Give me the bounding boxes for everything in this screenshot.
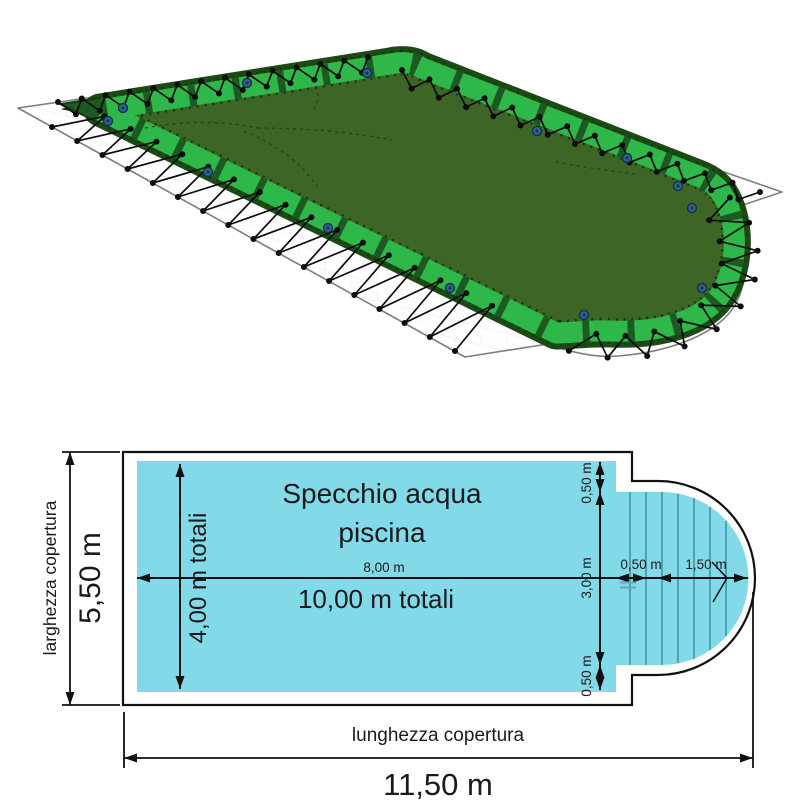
cover-width-value: 5,50 m xyxy=(74,532,107,624)
pool-rect-length-label: 8,00 m xyxy=(363,560,404,575)
scene: Specchio acqua piscina 8,00 m 10,00 m to… xyxy=(0,0,800,800)
cover-length-value: 11,50 m xyxy=(383,767,493,800)
edge-mid-label: 3,00 m xyxy=(579,557,594,598)
roman-radius-label: 1,50 m xyxy=(685,557,726,572)
pool-title-line1: Specchio acqua xyxy=(282,478,482,509)
edge-bottom-label: 0,50 m xyxy=(579,655,594,696)
technical-diagram: Specchio acqua piscina 8,00 m 10,00 m to… xyxy=(40,452,755,800)
pool-cover-datasheet: Specchio acqua piscina 8,00 m 10,00 m to… xyxy=(0,0,800,800)
edge-top-label: 0,50 m xyxy=(579,462,594,503)
pool-length-total-label: 10,00 m totali xyxy=(298,584,454,614)
pool-title-line2: piscina xyxy=(338,517,426,548)
pool-width-total-label: 4,00 m totali xyxy=(185,513,212,644)
cover-width-label: larghezza copertura xyxy=(40,500,60,655)
roman-step-label: 0,50 m xyxy=(620,557,661,572)
pool-cover-illustration xyxy=(18,54,782,361)
cover-length-label: lunghezza copertura xyxy=(352,725,525,746)
